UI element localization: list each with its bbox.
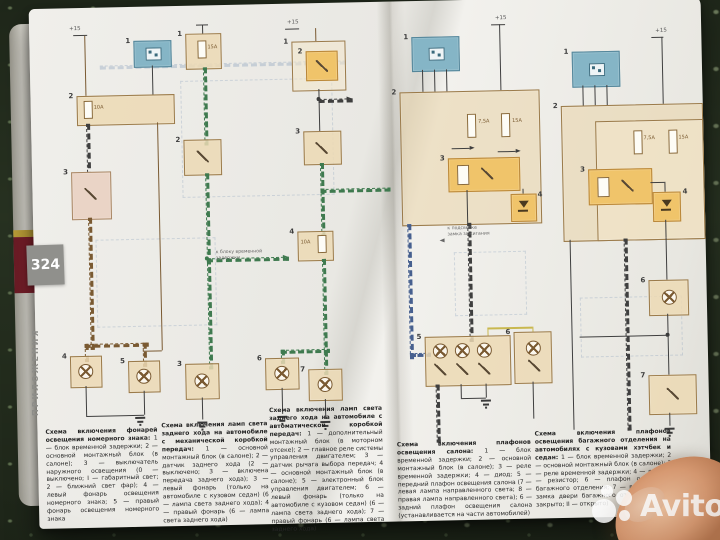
time-delay-relay-block: [448, 157, 521, 193]
terminal-label: +15: [69, 26, 81, 32]
ground-icon: [135, 417, 145, 426]
fuse-icon: [668, 130, 678, 154]
wire: [436, 385, 441, 443]
time-delay-block: [411, 36, 460, 72]
block-number: 3: [177, 360, 182, 368]
diode-icon: [519, 201, 529, 208]
wire: [202, 25, 203, 33]
wire: [86, 124, 91, 178]
diode-block: [511, 193, 538, 222]
block-number: 2: [175, 136, 180, 144]
logo-circle: [601, 485, 613, 497]
wire: [315, 28, 316, 41]
caption-body: 1 — основной монтажный блок (в салоне); …: [162, 444, 269, 524]
wire: [281, 349, 330, 354]
block-number: 7: [640, 371, 645, 379]
fuse-label: 10A: [301, 239, 311, 245]
switch-icon: [667, 388, 679, 400]
license-lamp-right: [128, 360, 161, 393]
connector-icon: [589, 63, 605, 76]
arrow-icon: [347, 96, 352, 100]
time-delay-relay-block: [588, 168, 653, 205]
appendix-vertical-label: ПРИЛОЖЕНИЯ: [31, 296, 40, 416]
time-delay-block: [133, 40, 172, 68]
relay-coil-icon: [457, 165, 469, 185]
logo-circle: [619, 510, 630, 521]
wire: [203, 67, 209, 145]
wire: [570, 240, 575, 430]
fuse-icon: [317, 235, 326, 253]
wire: [664, 182, 665, 192]
time-delay-block: [572, 51, 621, 88]
reverse-switch-block: [183, 139, 222, 176]
lamp-icon: [274, 366, 289, 381]
caption-reverse-lamps-manual: Схема включения ламп света заднего хода …: [161, 420, 269, 525]
block-number: 1: [177, 30, 182, 38]
wire: [88, 218, 95, 350]
showthrough-box: [454, 251, 527, 316]
wire: [666, 238, 668, 280]
front-dome-lamp-block: [425, 335, 512, 387]
fuse-icon: [633, 130, 643, 154]
caption-license-plate-lamps: Схема включения фонарей освещения номерн…: [45, 426, 159, 523]
wire-annotation: к блоку временной задержки: [216, 249, 282, 262]
switch-icon: [197, 150, 209, 162]
block-number: 3: [63, 168, 68, 176]
lamp-icon: [526, 340, 541, 355]
block-number: 3: [580, 165, 585, 173]
fuse-icon: [84, 101, 93, 119]
block-number: 1: [403, 33, 408, 41]
arrow-icon: [470, 146, 475, 150]
block-number: 5: [416, 333, 421, 341]
relay-contact-icon: [621, 179, 633, 191]
trunk-lid-switch-block: [648, 374, 697, 415]
relay-contact-icon: [316, 60, 328, 72]
fuse-label: 15A: [207, 44, 217, 50]
caption-body: 1 — дополнительный монтажный блок (в мот…: [270, 428, 385, 532]
fuse-icon: [197, 40, 206, 58]
caption-interior-dome-lamps: Схема включения плафонов освещения салон…: [397, 439, 533, 521]
reverse-lamp-block: [185, 363, 220, 400]
block-number: 4: [62, 352, 67, 360]
fuse-label: 15A: [512, 118, 522, 124]
block-number: 5: [120, 357, 125, 365]
lamp-icon: [194, 373, 209, 388]
fuse-label: 7,5A: [643, 135, 654, 141]
switch-icon: [434, 363, 446, 375]
terminal-label: +15: [495, 15, 507, 21]
wire-annotation: к подсветке замка зажигания: [447, 225, 491, 237]
rear-dome-lamp-block: [513, 331, 552, 384]
wire: [285, 28, 299, 29]
switch-icon: [528, 359, 540, 371]
lamp-icon: [477, 342, 492, 357]
lamp-icon: [455, 343, 470, 358]
fuse-label: 15A: [678, 134, 688, 140]
wire: [499, 24, 501, 90]
block-number: 2: [391, 88, 396, 96]
lamp-icon: [317, 377, 332, 392]
gear-selector-switch-block: [303, 131, 342, 166]
main-relay-block: [306, 51, 339, 82]
block-number: 2: [297, 47, 302, 55]
avito-watermark: Avito: [592, 484, 720, 528]
connector-icon: [145, 47, 161, 60]
block-number: 6: [640, 276, 645, 284]
arrow-icon: [283, 255, 288, 259]
arrow-icon: [516, 149, 521, 153]
wire: [533, 382, 535, 419]
wire: [85, 343, 149, 348]
rear-lamp-right-block: [308, 369, 343, 402]
block-number: 6: [505, 328, 510, 336]
wire: [202, 398, 203, 420]
block-number: 1: [283, 38, 288, 46]
switch-icon: [456, 363, 468, 375]
wire: [491, 24, 505, 25]
block-number: 4: [683, 187, 688, 195]
lamp-icon: [433, 343, 448, 358]
wire: [582, 85, 583, 105]
rear-lamp-left-block: [265, 358, 300, 391]
diode-block: [653, 191, 682, 222]
diode-bar-icon: [661, 209, 671, 211]
caption-body: 1 — блок временной задержки; 2 — основно…: [397, 447, 532, 520]
lamp-icon: [78, 364, 93, 379]
wire: [144, 391, 146, 415]
block-number: 2: [68, 92, 73, 100]
fuse-label: 10A: [94, 105, 104, 111]
caption-reverse-lamps-automatic: Схема включения ламп света заднего хода …: [269, 405, 385, 534]
wire: [594, 85, 595, 105]
block-number: 1: [125, 37, 130, 45]
wire: [152, 66, 154, 95]
wire: [86, 386, 88, 416]
wire: [84, 36, 86, 96]
lamp-icon: [662, 290, 677, 305]
diode-bar-icon: [518, 210, 528, 212]
wire: [606, 85, 607, 105]
photo-of-book: +15 1 2 10A 3 4 5: [0, 0, 720, 540]
block-number: 4: [289, 228, 294, 236]
switch-icon: [84, 188, 96, 200]
relay-contact-icon: [481, 167, 493, 179]
diode-icon: [662, 200, 672, 207]
wire: [434, 70, 435, 92]
light-switch-block: [71, 171, 112, 220]
arrow-icon: [440, 238, 445, 242]
logo-circle: [592, 499, 616, 523]
main-fuse-block: [297, 231, 334, 262]
terminal-label: +15: [655, 28, 667, 34]
block-number: 6: [257, 354, 262, 362]
block-number: 3: [440, 154, 445, 162]
fuse-label: 7,5A: [478, 118, 489, 124]
wire: [446, 69, 447, 91]
block-number: 2: [553, 102, 558, 110]
relay-coil-icon: [597, 177, 609, 197]
wire: [143, 350, 162, 351]
page-number-tab: 324: [26, 244, 64, 285]
block-number: 7: [300, 365, 305, 373]
avito-logo-icon: [592, 484, 634, 528]
fuse-icon: [501, 113, 511, 137]
wire: [461, 384, 462, 398]
logo-circle: [616, 490, 632, 506]
connector-icon: [429, 47, 445, 60]
wire: [422, 70, 423, 92]
wire: [661, 37, 663, 104]
watermark-text: Avito: [640, 489, 720, 524]
wire: [322, 259, 328, 375]
license-lamp-left: [70, 356, 103, 389]
block-number: 1: [564, 48, 569, 56]
block-number: 3: [295, 127, 300, 135]
trunk-lamp-block: [648, 279, 689, 316]
switch-icon: [478, 363, 490, 375]
switch-icon: [315, 142, 327, 154]
fuse-icon: [467, 114, 477, 138]
caption-title: Схема включения фонарей освещения номерн…: [45, 426, 157, 443]
open-book-spread: +15 1 2 10A 3 4 5: [29, 0, 712, 529]
block-number: 4: [538, 190, 543, 198]
caption-body: 1 — блок временной задержки; 2 — основно…: [46, 434, 159, 522]
ground-icon: [481, 399, 491, 408]
showthrough-box: [95, 237, 217, 327]
lamp-icon: [136, 369, 151, 384]
wire: [486, 384, 487, 398]
terminal-label: +15: [287, 19, 299, 25]
